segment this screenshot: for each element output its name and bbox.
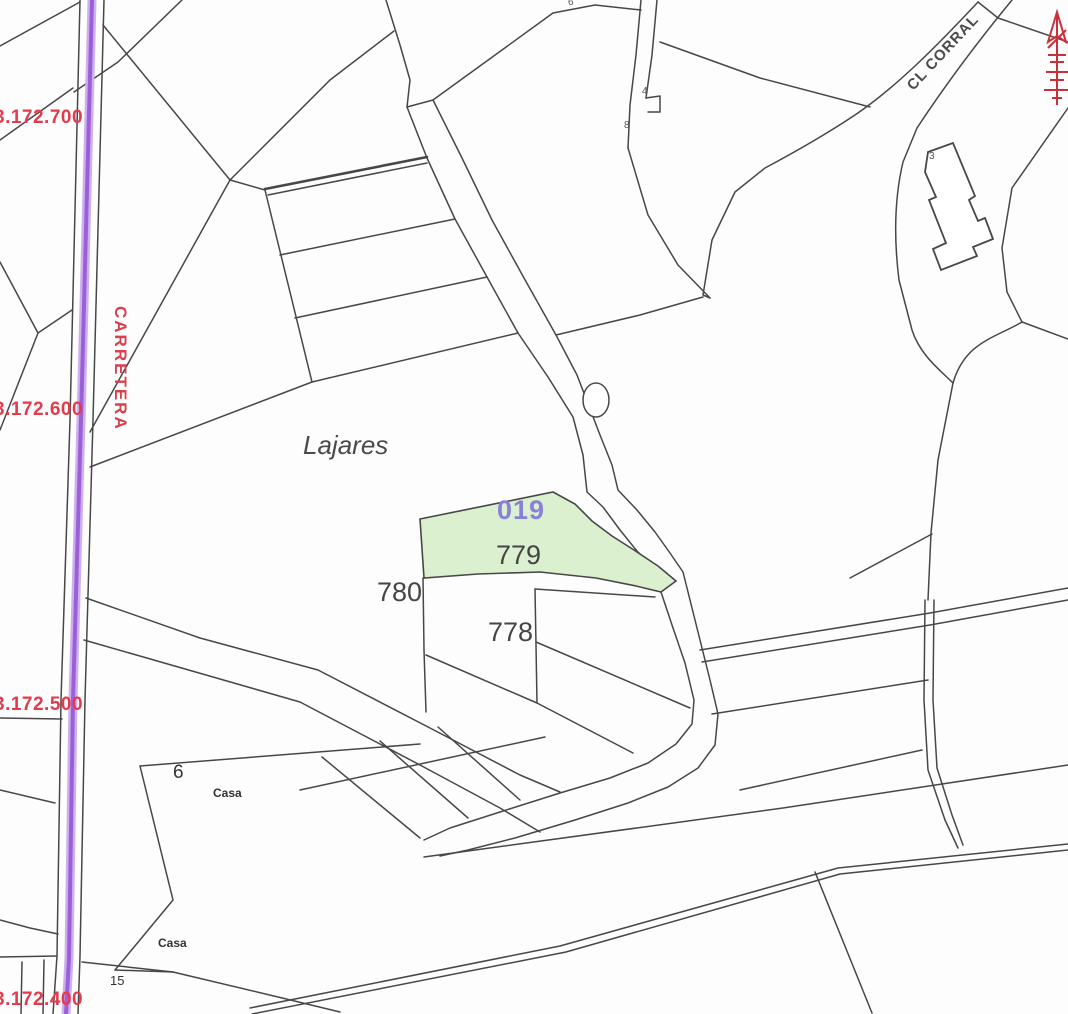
street-bulge — [583, 383, 609, 417]
parcel-number-778: 778 — [488, 619, 533, 646]
grid-label-3172600: 3.172.600 — [0, 400, 83, 419]
north-symbol-icon — [1044, 12, 1068, 105]
parcel-code-019: 019 — [497, 497, 545, 524]
grid-label-3172500: 3.172.500 — [0, 695, 83, 714]
carretera-road-centerline — [66, 0, 92, 1014]
parcel-number-780: 780 — [377, 579, 422, 606]
casa-label-lower: Casa — [158, 937, 187, 949]
house-number-6: 6 — [173, 763, 184, 782]
building-number-3: 3 — [929, 152, 935, 162]
house-number-15: 15 — [110, 974, 124, 987]
parcel-number-779: 779 — [496, 542, 541, 569]
grid-label-3172700: 3.172.700 — [0, 108, 83, 127]
highlighted-parcel-779[interactable] — [420, 492, 676, 592]
place-label-lajares: Lajares — [303, 432, 388, 458]
tiny-number-6: 6 — [568, 0, 574, 8]
street-name-carretera: CARRETERA — [112, 306, 129, 431]
casa-label-upper: Casa — [213, 787, 242, 799]
building-footprint — [925, 143, 993, 270]
tiny-number-4: 4 — [642, 87, 648, 97]
cadastral-map-canvas[interactable]: 3.172.700 3.172.600 3.172.500 3.172.400 … — [0, 0, 1068, 1014]
tiny-number-8: 8 — [624, 121, 630, 131]
grid-label-3172400: 3.172.400 — [0, 990, 83, 1009]
